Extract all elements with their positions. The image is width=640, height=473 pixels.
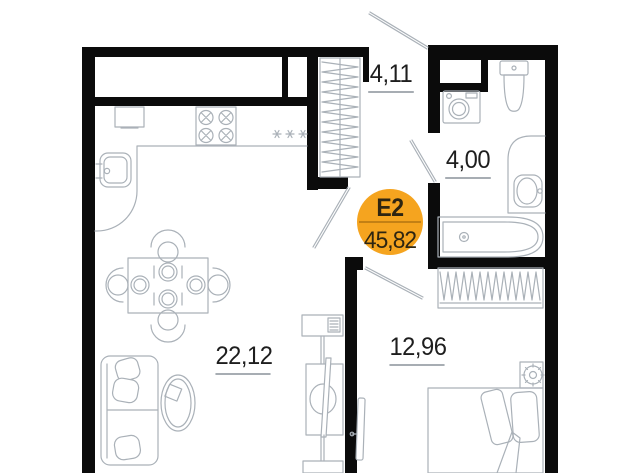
floor-plan: 4,11 4,00 22,12 12,96 Е2 45,82 (0, 0, 640, 473)
bedroom-door-icon (365, 269, 422, 299)
bedroom-door-icon (366, 267, 423, 297)
stove-icon (196, 107, 236, 145)
wall-left (82, 47, 95, 473)
unit-badge[interactable]: Е2 45,82 (357, 189, 423, 255)
bathroom-door-icon (410, 141, 434, 182)
unit-total-area: 45,82 (359, 227, 422, 255)
kitchen-sink-icon (96, 153, 131, 187)
wall-bathroom-bedroom (428, 257, 558, 269)
window-sill (95, 97, 307, 106)
living-door-icon (313, 187, 348, 247)
duct-shaft-right (481, 60, 488, 92)
media-unit-icon (302, 315, 343, 473)
wall-top-outer (82, 47, 369, 57)
toilet-icon (500, 61, 528, 111)
washing-machine-icon (443, 91, 480, 123)
bathroom-sink-icon (508, 136, 545, 213)
plant-icon (522, 364, 544, 386)
area-label-bedroom: 12,96 (389, 335, 444, 366)
area-label-bathroom: 4,00 (445, 148, 491, 179)
area-label-living: 22,12 (215, 344, 270, 375)
bed-icon (428, 388, 543, 473)
armchair-icon (161, 375, 195, 431)
vent-stars-icon (273, 131, 307, 138)
bedroom-wardrobe-icon (438, 268, 543, 308)
sofa-icon (101, 356, 158, 465)
kitchen-cabinet (115, 107, 144, 127)
entry-door-icon (370, 12, 428, 47)
kitchen-counter (95, 146, 307, 231)
wall-top-bathroom (428, 45, 558, 60)
window-mullion (282, 56, 288, 97)
area-label-hallway: 4,11 (368, 62, 414, 93)
wall-hall-stub (318, 177, 348, 189)
entry-door-icon (369, 14, 427, 49)
living-door-icon (315, 188, 350, 248)
bathroom-door-icon (412, 140, 436, 181)
floor-plan-drawing (0, 0, 640, 473)
wall-kitchen-hall (307, 47, 318, 190)
dining-table-icon (128, 258, 208, 313)
badge-divider (359, 221, 421, 223)
bathtub-icon (438, 217, 543, 257)
hallway-fixtures (320, 58, 360, 177)
dining-chairs-icon (106, 230, 230, 342)
wall-bathroom-west-upper (428, 60, 440, 133)
bedroom-door-jamb (345, 257, 363, 270)
unit-code: Е2 (360, 194, 421, 223)
wall-living-bedroom (345, 257, 357, 473)
hall-wardrobe-icon (320, 58, 360, 177)
bedroom-fixtures (350, 268, 544, 473)
kitchen-fixtures (95, 107, 307, 231)
